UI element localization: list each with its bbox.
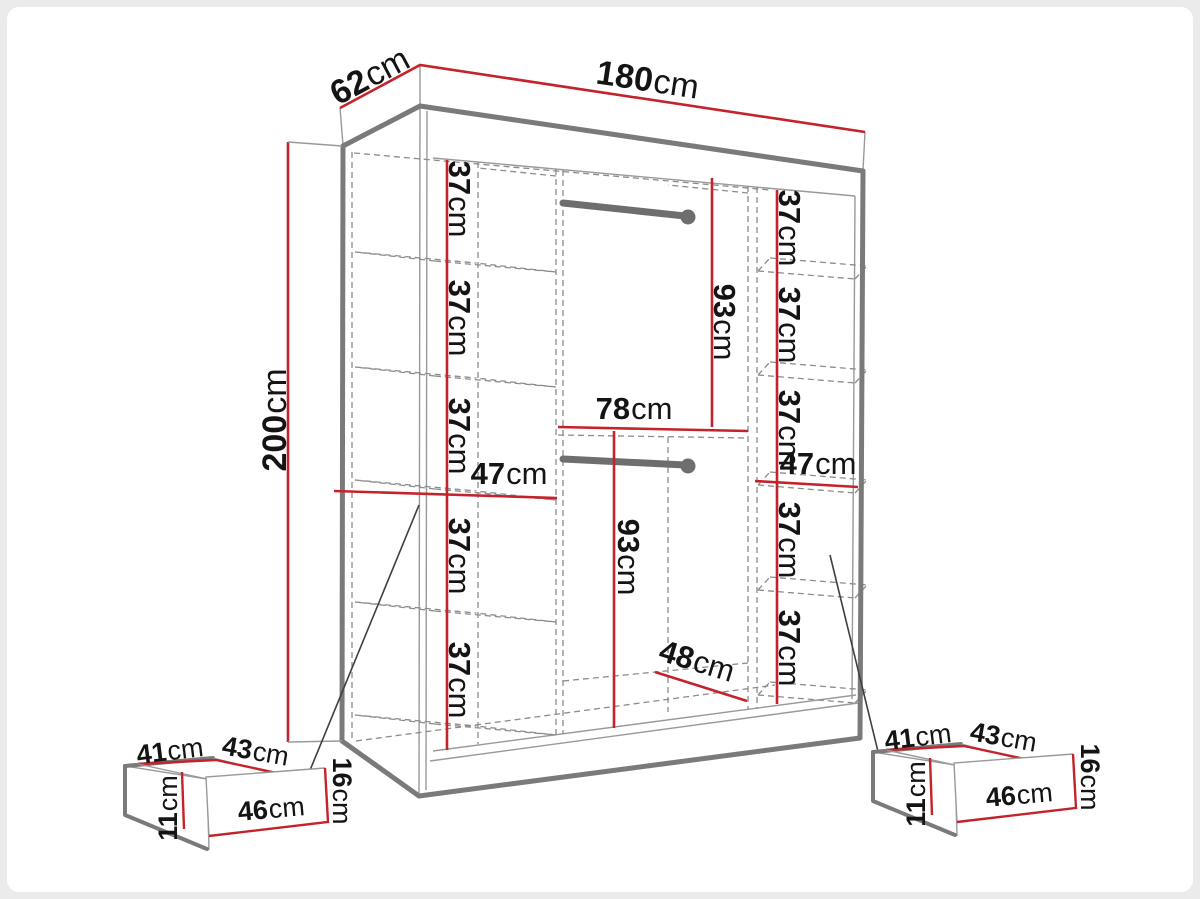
wardrobe-dimension-diagram: 41cm 43cm 46cm 16cm 11cm 41cm 43cm 46cm … bbox=[0, 0, 1200, 899]
left-shelf-spacing-4-label: 37cm bbox=[442, 518, 477, 595]
left-side-face bbox=[342, 106, 420, 796]
right-drawer-front-height-label: 16cm bbox=[1075, 743, 1105, 810]
right-column-width-label: 47cm bbox=[780, 446, 857, 481]
left-shelf-spacing-5-label: 37cm bbox=[442, 642, 477, 719]
left-shelf-spacing-2-label: 37cm bbox=[442, 280, 477, 357]
upper-rod-height-label: 93cm bbox=[707, 284, 742, 361]
left-drawer-front-height-label: 16cm bbox=[327, 757, 357, 824]
right-drawer-front-width-label: 46cm bbox=[985, 777, 1054, 813]
left-drawer-side-height-label: 11cm bbox=[153, 775, 183, 841]
wardrobe-height-label: 200cm bbox=[256, 368, 294, 471]
right-shelf-spacing-5-label: 37cm bbox=[772, 610, 807, 687]
left-shelf-spacing-1-label: 37cm bbox=[442, 161, 477, 238]
right-drawer-side-height-label: 11cm bbox=[901, 761, 931, 827]
right-shelf-spacing-2-label: 37cm bbox=[772, 287, 807, 364]
right-shelf-spacing-4-label: 37cm bbox=[772, 502, 807, 579]
left-column-width-label: 47cm bbox=[471, 456, 548, 491]
middle-section-width-label: 78cm bbox=[596, 391, 673, 426]
right-shelf-spacing-1-label: 37cm bbox=[772, 190, 807, 267]
left-drawer-front-width-label: 46cm bbox=[237, 791, 306, 827]
diagram-canvas: 41cm 43cm 46cm 16cm 11cm 41cm 43cm 46cm … bbox=[0, 0, 1200, 899]
lower-rod-height-label: 93cm bbox=[611, 519, 646, 596]
